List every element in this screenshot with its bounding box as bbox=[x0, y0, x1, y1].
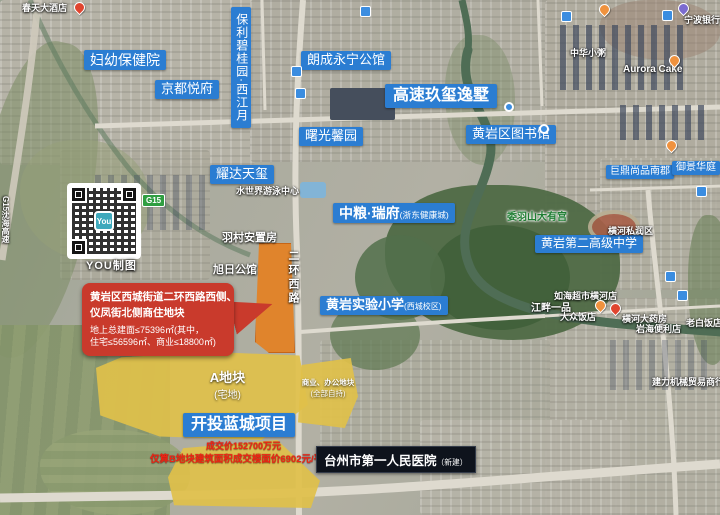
poi-ruhai-supermarket: 如海超市横河店 bbox=[554, 289, 617, 302]
poi-yanhai-store: 岩海便利店 bbox=[636, 322, 681, 335]
poi-henghe-area: 横河私润区 bbox=[608, 224, 653, 237]
label-zhongliang-main: 中粮·瑞府 bbox=[339, 205, 400, 221]
parcel-office-sub: (全部自持) bbox=[297, 388, 359, 399]
label-hospital-suffix: （新建） bbox=[437, 458, 468, 467]
label-shiyan-suffix: (西城校区) bbox=[404, 302, 442, 311]
parcel-a-label: A地块 (宅地) bbox=[185, 367, 270, 401]
poi-xuri-gongguan: 旭日公馆 bbox=[213, 261, 257, 277]
label-shuguang-xinyuan: 曙光馨园 bbox=[299, 127, 363, 146]
satellite-map-canvas: A地块 (宅地) 商业、办公地块 (全部自持) 成交价152700万元 仅算B地… bbox=[0, 0, 720, 515]
label-hospital-main: 台州市第一人民医院 bbox=[324, 454, 437, 468]
callout-title-line2: 仪凤街北侧商住地块 bbox=[90, 306, 226, 322]
bus-stop-icon bbox=[561, 11, 572, 22]
qr-finder-icon bbox=[123, 188, 136, 201]
parcel-a-name: A地块 bbox=[185, 367, 270, 386]
poi-ningbo-bank: 宁波银行 bbox=[684, 13, 720, 26]
label-gaosu-jiuxi-yishu: 高速玖玺逸墅 bbox=[385, 84, 497, 108]
qr-code: You bbox=[67, 183, 141, 259]
callout-title-line1: 黄岩区西城街道二环西路西侧、 bbox=[90, 290, 226, 306]
bus-stop-icon bbox=[665, 271, 676, 282]
poi-yucun-anzhifang: 羽村安置房 bbox=[222, 229, 277, 245]
poi-chuntian-hotel: 春天大酒店 bbox=[22, 1, 67, 14]
label-hospital: 台州市第一人民医院（新建） bbox=[316, 446, 476, 473]
parcel-a-sub: (宅地) bbox=[185, 386, 270, 401]
road-name-g15-shenhai: G15沈海高速 bbox=[0, 196, 11, 243]
parcel-office-label: 商业、办公地块 (全部自持) bbox=[297, 377, 359, 399]
label-dier-gaoji-zhongxue: 黄岩第二高级中学 bbox=[535, 235, 643, 253]
label-zhongliang-ruifu: 中粮·瑞府(浙东健康城) bbox=[333, 203, 455, 223]
poi-zhonghua-xiaozhou: 中华小粥 bbox=[570, 46, 606, 59]
qr-finder-icon bbox=[72, 241, 85, 254]
bus-stop-icon bbox=[677, 290, 688, 301]
building-rows bbox=[620, 105, 710, 140]
parcel-office-name: 商业、办公地块 bbox=[297, 377, 359, 388]
deal-floor-price-text: 仅算B地块建筑面积成交楼面价6902元/平 bbox=[150, 451, 323, 465]
label-shiyan-xiaoxue: 黄岩实验小学(西城校区) bbox=[320, 296, 448, 315]
label-langcheng-yongning: 朗成永宁公馆 bbox=[301, 51, 391, 70]
bus-stop-icon bbox=[662, 10, 673, 21]
qr-finder-icon bbox=[72, 188, 85, 201]
bus-stop-icon bbox=[360, 6, 371, 17]
label-jingdu-yuefu: 京都悦府 bbox=[155, 80, 219, 99]
bus-stop-icon bbox=[696, 186, 707, 197]
bus-stop-icon bbox=[291, 66, 302, 77]
poi-laobai-restaurant: 老白饭店 bbox=[686, 316, 720, 329]
label-fuyou-baojianyuan: 妇幼保健院 bbox=[84, 50, 166, 70]
label-shiyan-main: 黄岩实验小学 bbox=[326, 297, 404, 312]
poi-dazhong-restaurant: 大众饭店 bbox=[560, 310, 596, 323]
parcel-callout-box: 黄岩区西城街道二环西路西侧、 仪凤街北侧商住地块 地上总建面≤75396㎡(其中… bbox=[82, 283, 234, 356]
label-kaitou-lancheng: 开投蓝城项目 bbox=[183, 413, 295, 437]
poi-water-world: 水世界游泳中心 bbox=[236, 184, 299, 197]
label-yujing-huating: 御景华庭 bbox=[672, 161, 720, 175]
label-yaoda-tianxi: 耀达天玺 bbox=[210, 165, 274, 184]
qr-center-logo: You bbox=[94, 211, 114, 231]
poi-jianli-machinery: 建力机械贸易商行 bbox=[652, 375, 720, 388]
swimming-pool bbox=[300, 182, 326, 198]
callout-detail-line2: 住宅≤56596㎡、商业≤18800㎡) bbox=[90, 336, 226, 349]
label-zhongliang-suffix: (浙东健康城) bbox=[400, 210, 449, 220]
callout-detail-line1: 地上总建面≤75396㎡(其中， bbox=[90, 324, 226, 337]
road-name-erhuanxilu: 二环西路 bbox=[285, 250, 301, 306]
map-credit-watermark: YOU制图 bbox=[86, 257, 137, 273]
label-juding-shangpin: 巨鼎尚品南郡 bbox=[606, 165, 674, 179]
road-shield-g15: G15 bbox=[142, 194, 165, 207]
label-weiyushan-temple: 委羽山大有宫 bbox=[507, 208, 567, 223]
label-baoli-xijiangyue: 保利碧桂园·西江月 bbox=[231, 7, 251, 128]
metro-station-icon bbox=[539, 124, 549, 134]
metro-station-icon bbox=[504, 102, 514, 112]
bus-stop-icon bbox=[295, 88, 306, 99]
